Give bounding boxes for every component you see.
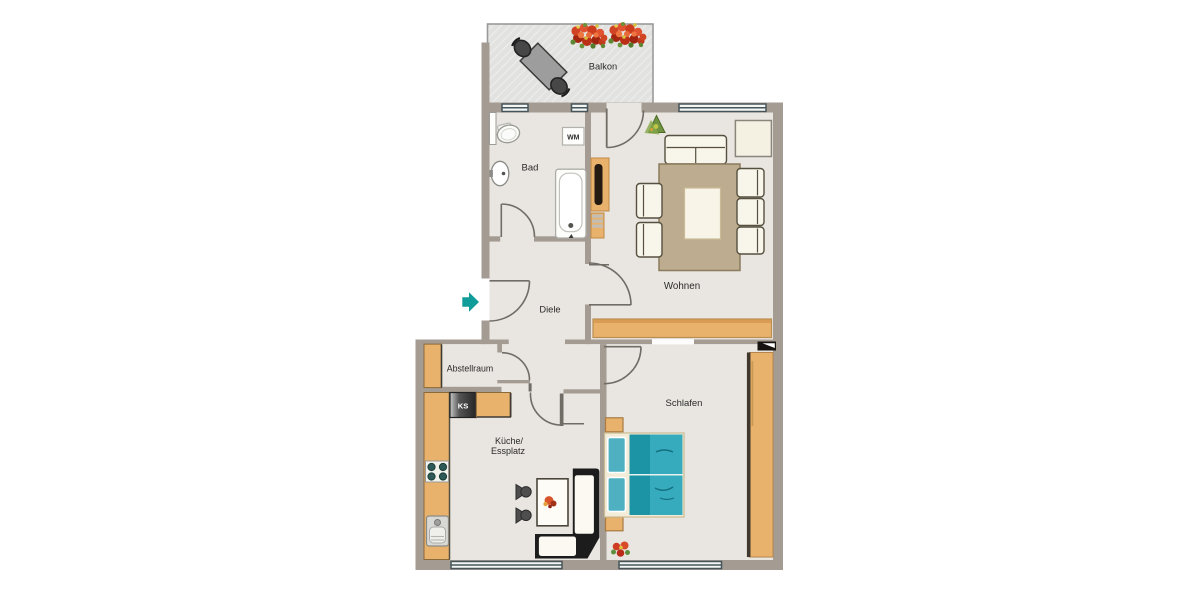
svg-text:Küche/: Küche/: [495, 436, 524, 446]
svg-text:Diele: Diele: [539, 305, 560, 315]
svg-text:Bad: Bad: [522, 163, 539, 174]
svg-text:Essplatz: Essplatz: [491, 446, 526, 456]
svg-text:Schlafen: Schlafen: [666, 398, 703, 409]
svg-text:Wohnen: Wohnen: [664, 281, 700, 292]
svg-text:Abstellraum: Abstellraum: [447, 364, 493, 374]
svg-text:KS: KS: [458, 402, 469, 411]
svg-text:WM: WM: [567, 134, 580, 141]
svg-text:Balkon: Balkon: [589, 62, 617, 72]
